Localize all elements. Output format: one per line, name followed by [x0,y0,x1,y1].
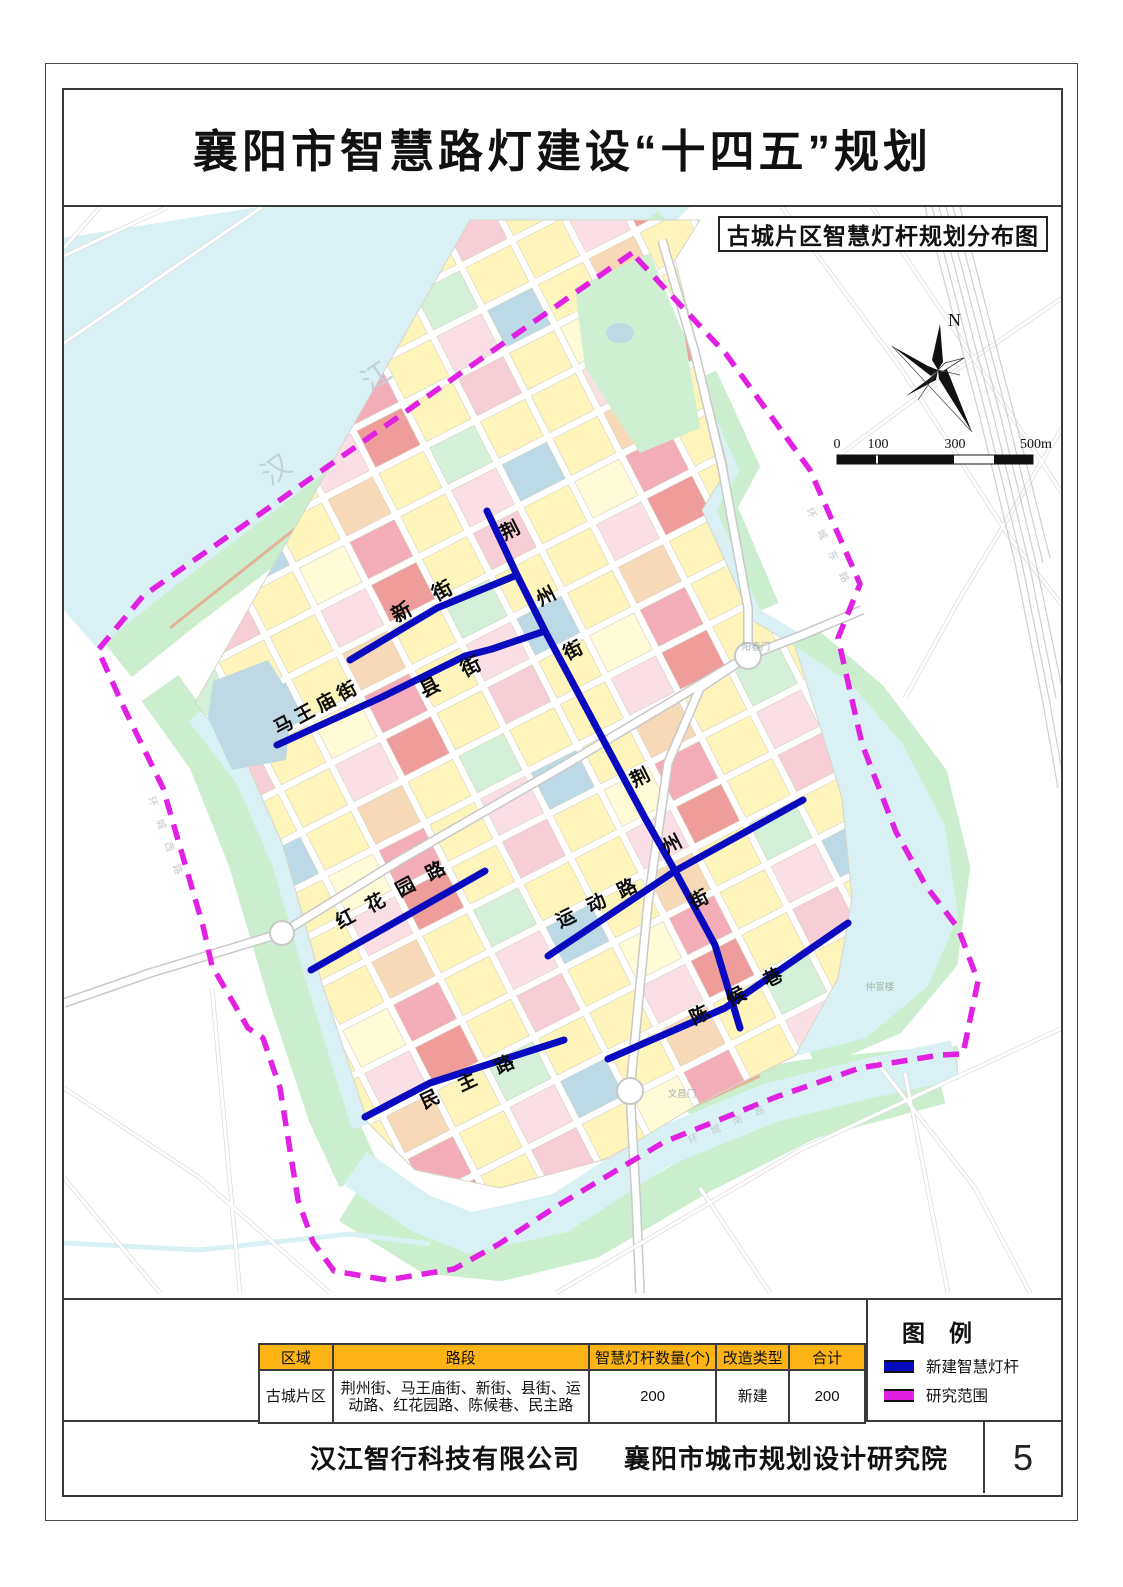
cell-roads: 荆州街、马王庙街、新街、县街、运动路、红花园路、陈候巷、民主路 [333,1370,589,1423]
legend: 图例 新建智慧灯杆 研究范围 [866,1300,1059,1420]
scale-0: 0 [834,437,841,452]
new-pole-line-swatch [884,1360,914,1373]
page-number: 5 [983,1422,1061,1493]
legend-item-new-pole: 新建智慧灯杆 [884,1355,1019,1377]
col-header-roads: 路段 [333,1344,589,1370]
map-subtitle: 古城片区智慧灯杆规划分布图 [727,217,1039,251]
poi-label-zhongxuanlou: 仲宣楼 [866,981,895,993]
col-header-total: 合计 [789,1344,865,1370]
footer-bar: 汉江智行科技有限公司 襄阳市城市规划设计研究院 5 [64,1422,1061,1493]
map-subtitle-box: 古城片区智慧灯杆规划分布图 [718,216,1048,252]
pole-plan-table: 区域 路段 智慧灯杆数量(个) 改造类型 合计 古城片区 荆州街、马王庙街、新街… [258,1343,866,1424]
scale-500m: 500m [1020,437,1052,452]
company-name-right: 襄阳市城市规划设计研究院 [624,1439,948,1476]
cell-type: 新建 [716,1370,789,1423]
gate-label-yangchunmen: 阳春门 [742,641,771,653]
inner-frame: 襄阳市智慧路灯建设“十四五”规划 [62,88,1063,1497]
scale-300: 300 [945,437,966,452]
outer-frame: 襄阳市智慧路灯建设“十四五”规划 [45,63,1078,1521]
table-header-row: 区域 路段 智慧灯杆数量(个) 改造类型 合计 [259,1344,865,1370]
legend-title: 图例 [902,1314,996,1348]
cell-count: 200 [589,1370,717,1423]
gate-label-wenchangmen: 文昌门 [668,1088,697,1100]
legend-item-study-scope: 研究范围 [884,1384,988,1406]
col-header-type: 改造类型 [716,1344,789,1370]
cell-area: 古城片区 [259,1370,333,1423]
legend-item-label: 研究范围 [926,1384,988,1406]
table-row: 古城片区 荆州街、马王庙街、新街、县街、运动路、红花园路、陈候巷、民主路 200… [259,1370,865,1423]
page-title: 襄阳市智慧路灯建设“十四五”规划 [193,115,932,180]
legend-item-label: 新建智慧灯杆 [926,1355,1019,1377]
planning-map: 荆 州 街 荆 州 街 新街 县街 马王庙街 红花园路 运动路 陈候巷 民主路 [64,207,1061,1298]
scale-100: 100 [868,437,889,452]
bottom-section: 区域 路段 智慧灯杆数量(个) 改造类型 合计 古城片区 荆州街、马王庙街、新街… [64,1300,1061,1422]
col-header-count: 智慧灯杆数量(个) [589,1344,717,1370]
plan-sheet: 襄阳市智慧路灯建设“十四五”规划 [0,0,1123,1587]
park-pond [606,323,634,343]
credits: 汉江智行科技有限公司 襄阳市城市规划设计研究院 [310,1422,948,1493]
title-bar: 襄阳市智慧路灯建设“十四五”规划 [64,90,1061,207]
north-label: N [948,310,961,330]
cell-total: 200 [789,1370,865,1423]
table-zone: 区域 路段 智慧灯杆数量(个) 改造类型 合计 古城片区 荆州街、马王庙街、新街… [64,1300,866,1420]
study-scope-swatch [884,1389,914,1402]
company-name-left: 汉江智行科技有限公司 [310,1439,580,1476]
col-header-area: 区域 [259,1344,333,1370]
map-area: 荆 州 街 荆 州 街 新街 县街 马王庙街 红花园路 运动路 陈候巷 民主路 [64,207,1061,1300]
